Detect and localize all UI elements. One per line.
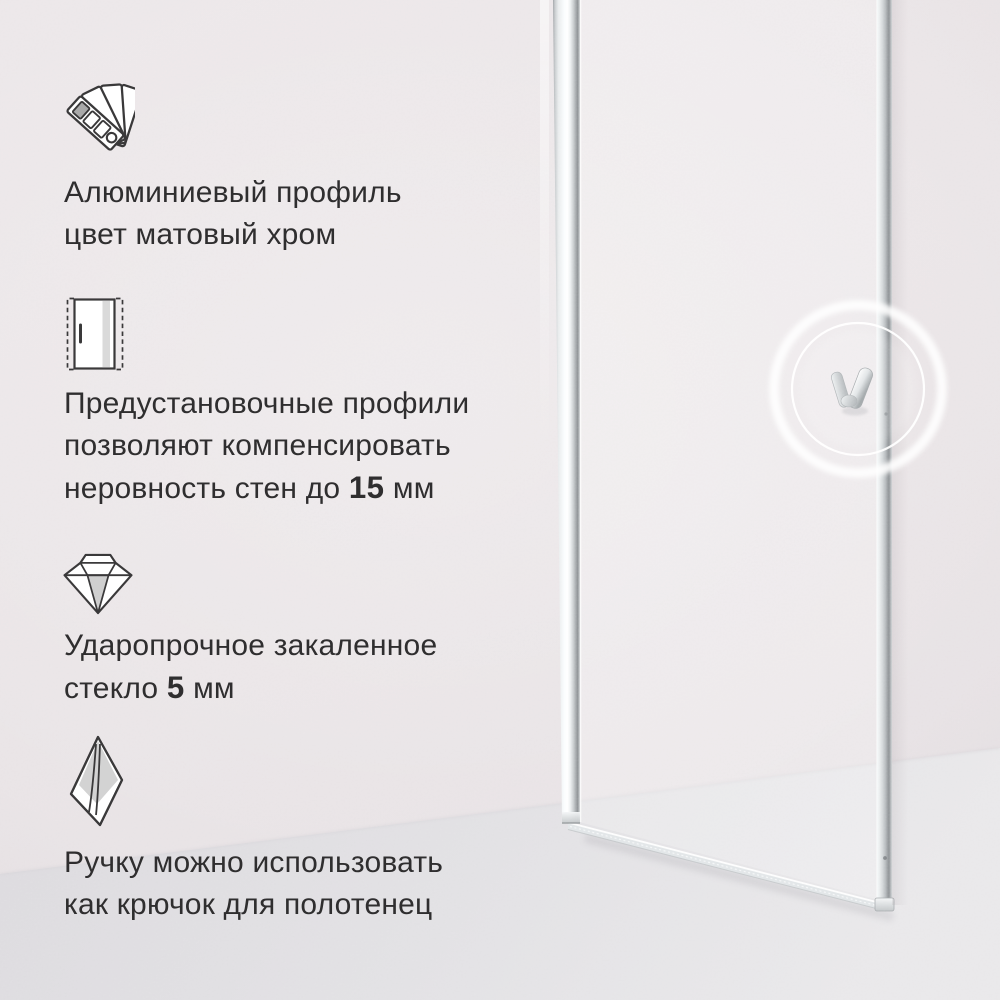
feature-line: Алюминиевый профиль [64,172,402,214]
door-profile-icon [66,297,124,376]
feature-text-segment: Предустановочные профили [64,387,469,420]
feature-line: цвет матовый хром [64,214,402,256]
diamond-icon [61,551,135,622]
feature-text-segment: стекло [64,672,167,705]
feature-value: 5 [167,670,185,705]
feature-line: позволяют компенсировать [64,425,469,467]
towel-hook-icon [67,734,125,833]
feature-value: 15 [349,470,385,505]
feature-text-segment: позволяют компенсировать [64,429,451,462]
feature-text-aluminium-profile: Алюминиевый профиль цвет матовый хром [64,172,402,256]
feature-line: стекло 5 мм [64,667,437,710]
feature-text-segment: Алюминиевый профиль [64,176,402,209]
feature-text-segment: мм [185,672,235,705]
color-swatches-icon [63,81,135,164]
feature-text-segment: Ударопрочное закаленное [64,629,437,662]
feature-text-tempered-glass: Ударопрочное закаленное стекло 5 мм [64,625,437,710]
feature-line: Ударопрочное закаленное [64,625,437,667]
feature-text-segment: мм [384,472,434,505]
feature-text-preinstall-profiles: Предустановочные профили позволяют компе… [64,383,469,510]
feature-text-segment: неровность стен до [64,472,349,505]
feature-line: Предустановочные профили [64,383,469,425]
feature-line: как крючок для полотенец [64,884,443,926]
feature-text-segment: как крючок для полотенец [64,888,432,921]
feature-text-towel-hook: Ручку можно использовать как крючок для … [64,842,443,926]
feature-list: Алюминиевый профиль цвет матовый хром Пр… [0,0,1000,1000]
feature-text-segment: Ручку можно использовать [64,846,443,879]
feature-text-segment: цвет матовый хром [64,218,336,251]
feature-line: неровность стен до 15 мм [64,467,469,510]
product-infographic: Алюминиевый профиль цвет матовый хром Пр… [0,0,1000,1000]
feature-line: Ручку можно использовать [64,842,443,884]
